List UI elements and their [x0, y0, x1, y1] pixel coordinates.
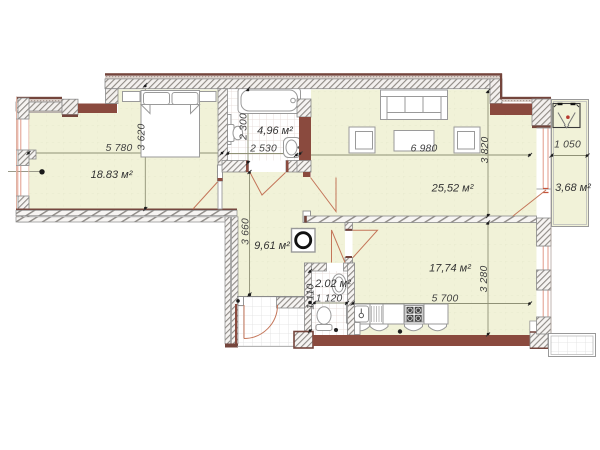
svg-text:3 820: 3 820: [480, 137, 491, 164]
svg-text:2 530: 2 530: [249, 144, 277, 155]
svg-text:25,52 м²: 25,52 м²: [431, 183, 474, 195]
svg-text:6 980: 6 980: [411, 144, 438, 155]
svg-text:17,74 м²: 17,74 м²: [429, 263, 471, 275]
svg-text:3,68 м²: 3,68 м²: [555, 182, 591, 194]
svg-text:5 700: 5 700: [432, 294, 459, 305]
svg-text:9,61 м²: 9,61 м²: [254, 240, 290, 252]
svg-text:1 120: 1 120: [316, 294, 343, 305]
svg-text:2 300: 2 300: [239, 113, 250, 141]
svg-text:3 620: 3 620: [137, 124, 148, 151]
svg-text:4,96 м²: 4,96 м²: [257, 125, 293, 137]
svg-text:18.83 м²: 18.83 м²: [91, 169, 133, 181]
svg-text:3 280: 3 280: [479, 266, 490, 293]
svg-text:3 660: 3 660: [241, 218, 252, 245]
svg-text:5 780: 5 780: [106, 143, 133, 154]
svg-text:1 050: 1 050: [554, 140, 581, 151]
svg-text:2.02 м²: 2.02 м²: [314, 278, 351, 290]
svg-text:1 110: 1 110: [306, 283, 317, 309]
